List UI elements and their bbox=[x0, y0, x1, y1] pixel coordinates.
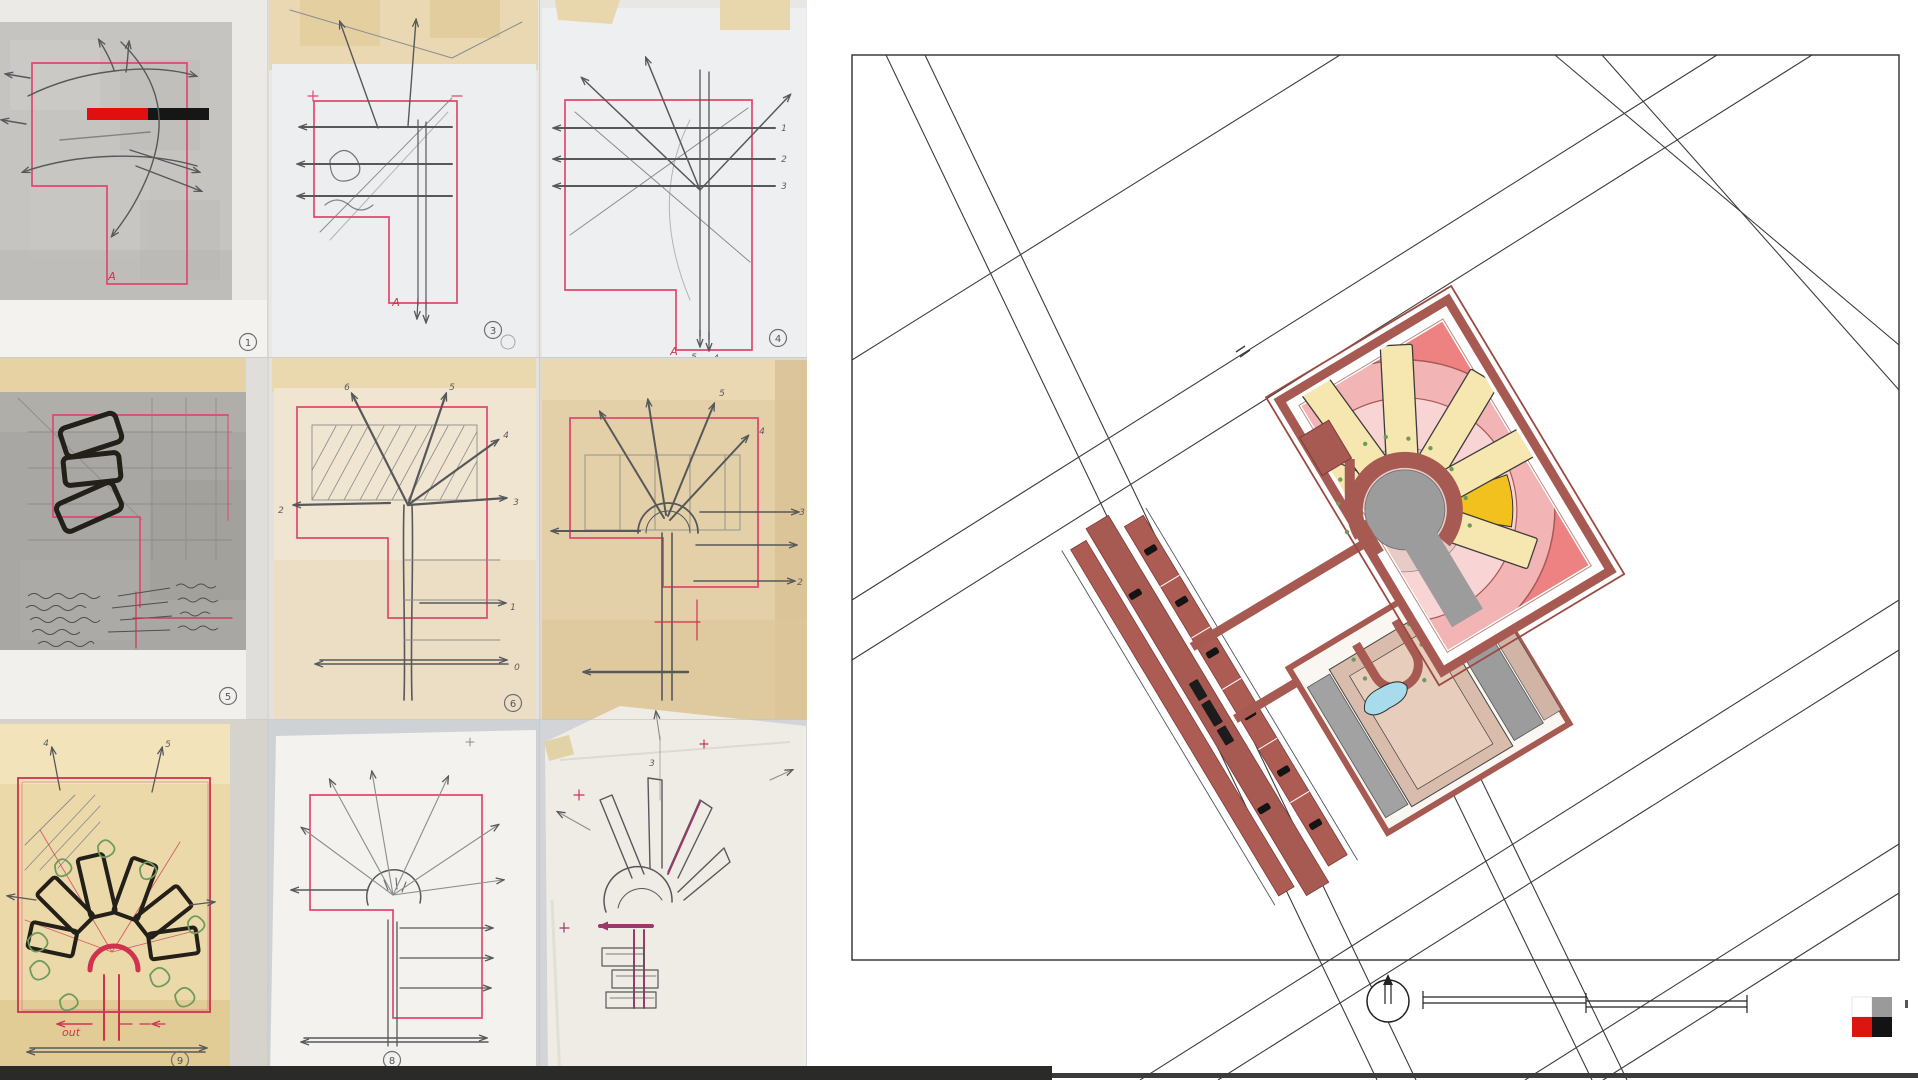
legend-black-square bbox=[1872, 1017, 1892, 1037]
sheet4-bottom-margin bbox=[0, 650, 246, 720]
sketch-sheet-3: 1 2 3 5 4 A 4 bbox=[540, 0, 807, 364]
sheet3-paper bbox=[542, 8, 806, 357]
sheet1-scale-bar bbox=[87, 108, 209, 120]
sheet2-paper bbox=[272, 64, 536, 357]
arrow-label: 3 bbox=[799, 508, 805, 518]
bottom-edge-line bbox=[1052, 1073, 1918, 1078]
svg-text:1: 1 bbox=[245, 338, 251, 349]
tape-piece bbox=[555, 0, 620, 24]
arrow-label: 5 bbox=[449, 383, 455, 393]
tiny-mark bbox=[1905, 1000, 1908, 1008]
paper-blotch bbox=[542, 620, 807, 720]
arrow-label: 0 bbox=[514, 663, 520, 673]
board-canvas: A 1 bbox=[0, 0, 1918, 1080]
arrow-label: 4 bbox=[43, 739, 49, 749]
sheet9-paper bbox=[545, 706, 806, 1080]
paper-blotch bbox=[542, 360, 807, 400]
arrow-label: 3 bbox=[513, 498, 519, 508]
sketch-sheet-1: A 1 bbox=[0, 0, 267, 357]
sheet2-red-mark: A bbox=[391, 296, 400, 309]
arrow-label: 5 bbox=[165, 740, 171, 750]
svg-text:out: out bbox=[62, 1026, 81, 1039]
tape-piece bbox=[720, 0, 790, 30]
sketch-sheet-2: A 3 bbox=[268, 0, 539, 357]
tape-piece bbox=[430, 0, 500, 38]
wing bbox=[1380, 344, 1418, 461]
arrow-label: 4 bbox=[503, 431, 509, 441]
sheet1-red-mark: A bbox=[107, 270, 116, 283]
arrow-label: 3 bbox=[781, 182, 787, 192]
sheet4-aerial-photo bbox=[0, 392, 246, 650]
sketch-sheet-9: 3 bbox=[540, 706, 807, 1080]
site-plan-sheet bbox=[807, 0, 1918, 1080]
legend-gray-square bbox=[1872, 997, 1892, 1017]
svg-text:5: 5 bbox=[225, 692, 231, 703]
scale-bar-black bbox=[148, 108, 209, 120]
sketch-sheet-5: 6 5 4 3 2 1 0 6 bbox=[268, 357, 540, 720]
svg-text:6: 6 bbox=[510, 699, 516, 710]
sketch-sheet-6: 5 4 3 2 bbox=[540, 357, 807, 720]
sheet1-bottom-margin bbox=[0, 300, 267, 357]
arrow-label: 2 bbox=[278, 506, 284, 516]
svg-text:8: 8 bbox=[389, 1056, 395, 1067]
sketch-sheet-8: 8 bbox=[268, 720, 540, 1080]
scale-bar-red bbox=[87, 108, 148, 120]
arrow-label: 2 bbox=[781, 155, 787, 165]
arrow-label: 1 bbox=[510, 603, 516, 613]
svg-text:3: 3 bbox=[490, 326, 496, 337]
arrow-label: 2 bbox=[797, 578, 803, 588]
presentation-board: A 1 bbox=[0, 0, 1918, 1080]
arrow-label: 1 bbox=[781, 124, 787, 134]
sketch-montage: A 1 bbox=[0, 0, 807, 1080]
svg-text:4: 4 bbox=[775, 334, 781, 345]
arrow-label: 3 bbox=[649, 759, 655, 769]
sheet3-red-mark: A bbox=[669, 345, 678, 358]
bottom-edge-bar bbox=[0, 1066, 1052, 1080]
arrow-label: 6 bbox=[344, 383, 350, 393]
sketch-sheet-7: 4 5 out 9 bbox=[0, 720, 268, 1080]
arrow-label: 4 bbox=[759, 427, 765, 437]
paper-blotch bbox=[0, 724, 230, 784]
sheet4-tape-strip bbox=[0, 358, 246, 392]
sheet5-tape-strip bbox=[272, 358, 536, 392]
arrow-label: 5 bbox=[719, 389, 725, 399]
legend-red-square bbox=[1852, 1017, 1872, 1037]
svg-text:9: 9 bbox=[177, 1056, 183, 1067]
legend-white-square bbox=[1852, 997, 1872, 1017]
sketch-sheet-4: 5 bbox=[0, 357, 268, 720]
